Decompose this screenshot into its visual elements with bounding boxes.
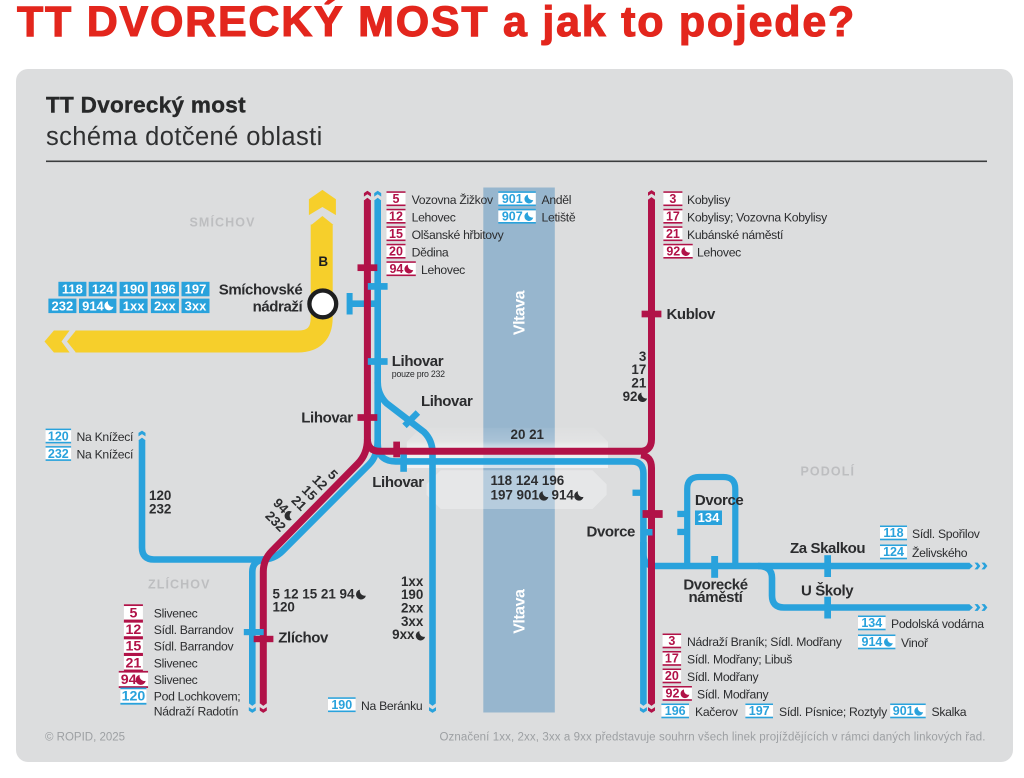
svg-text:190: 190 xyxy=(123,282,145,297)
svg-text:pouze pro 232: pouze pro 232 xyxy=(392,369,445,379)
svg-text:Sídl. Modřany: Sídl. Modřany xyxy=(687,670,759,684)
svg-text:Slivenec: Slivenec xyxy=(154,673,198,687)
svg-text:ZLÍCHOV: ZLÍCHOV xyxy=(148,577,211,592)
svg-text:Dědina: Dědina xyxy=(412,245,449,259)
svg-text:© ROPID, 2025: © ROPID, 2025 xyxy=(45,732,125,744)
svg-text:Dvorce: Dvorce xyxy=(587,524,636,541)
svg-text:914: 914 xyxy=(862,635,883,649)
svg-text:20: 20 xyxy=(389,245,403,259)
svg-text:Sídl. Barrandov: Sídl. Barrandov xyxy=(154,640,235,654)
svg-text:PODOLÍ: PODOLÍ xyxy=(801,464,856,479)
svg-text:Na Beránku: Na Beránku xyxy=(361,699,422,713)
svg-text:124: 124 xyxy=(883,545,904,559)
svg-text:Podolská vodárna: Podolská vodárna xyxy=(891,617,984,631)
svg-text:U Školy: U Školy xyxy=(801,582,854,600)
svg-text:1xx: 1xx xyxy=(123,298,145,313)
svg-text:Kubánské náměstí: Kubánské náměstí xyxy=(687,228,784,242)
svg-text:TT DVORECKÝ MOST a jak to poje: TT DVORECKÝ MOST a jak to pojede? xyxy=(17,0,856,46)
svg-text:134: 134 xyxy=(698,510,720,525)
svg-text:134: 134 xyxy=(861,616,882,630)
svg-text:118: 118 xyxy=(883,526,903,540)
svg-text:Anděl: Anděl xyxy=(542,193,572,207)
svg-text:Na Knížecí: Na Knížecí xyxy=(77,448,135,462)
svg-text:Pod Lochkovem;: Pod Lochkovem; xyxy=(154,690,241,704)
svg-text:21: 21 xyxy=(666,227,680,241)
svg-text:20: 20 xyxy=(665,669,679,683)
svg-text:Nádraží Braník; Sídl. Modřany: Nádraží Braník; Sídl. Modřany xyxy=(687,635,843,649)
svg-text:124: 124 xyxy=(92,282,114,297)
svg-text:120: 120 xyxy=(273,600,295,615)
svg-text:15: 15 xyxy=(389,227,403,241)
svg-text:120: 120 xyxy=(122,689,146,705)
svg-text:Kačerov: Kačerov xyxy=(695,705,739,719)
svg-text:232: 232 xyxy=(48,447,69,461)
svg-text:92: 92 xyxy=(666,245,680,259)
svg-text:Lehovec: Lehovec xyxy=(421,263,465,277)
svg-text:Želivského: Želivského xyxy=(912,545,968,560)
svg-text:92: 92 xyxy=(666,687,680,701)
svg-text:Olšanské hřbitovy: Olšanské hřbitovy xyxy=(412,228,505,242)
svg-text:94: 94 xyxy=(121,672,137,688)
svg-text:901: 901 xyxy=(893,704,914,718)
svg-text:3: 3 xyxy=(669,192,676,206)
svg-text:Smíchovské: Smíchovské xyxy=(219,281,303,298)
svg-text:Nádraží Radotín: Nádraží Radotín xyxy=(154,705,238,719)
svg-text:Slivenec: Slivenec xyxy=(154,656,198,670)
svg-text:Vltava: Vltava xyxy=(512,589,529,634)
svg-text:232: 232 xyxy=(52,298,74,313)
svg-text:21: 21 xyxy=(126,655,142,671)
svg-text:Kobylisy; Vozovna Kobylisy: Kobylisy; Vozovna Kobylisy xyxy=(687,210,828,224)
svg-text:2xx: 2xx xyxy=(154,298,176,313)
svg-text:197: 197 xyxy=(749,704,770,718)
svg-text:Sídl. Modřany; Libuš: Sídl. Modřany; Libuš xyxy=(687,653,792,667)
svg-text:914: 914 xyxy=(82,298,104,313)
svg-text:Dvorce: Dvorce xyxy=(695,492,744,509)
svg-text:TT Dvorecký most: TT Dvorecký most xyxy=(46,93,246,118)
svg-text:Lehovec: Lehovec xyxy=(412,210,456,224)
svg-text:náměstí: náměstí xyxy=(689,589,744,606)
svg-text:Sídl. Písnice; Roztyly: Sídl. Písnice; Roztyly xyxy=(779,705,888,719)
svg-text:Na Knížecí: Na Knížecí xyxy=(77,430,135,444)
svg-text:12: 12 xyxy=(389,210,403,224)
svg-text:Lihovar: Lihovar xyxy=(392,353,444,370)
svg-text:Vltava: Vltava xyxy=(512,290,529,335)
svg-text:Skalka: Skalka xyxy=(932,705,967,719)
svg-text:17: 17 xyxy=(665,652,679,666)
svg-text:196: 196 xyxy=(154,282,176,297)
svg-text:Slivenec: Slivenec xyxy=(154,606,198,620)
svg-text:SMÍCHOV: SMÍCHOV xyxy=(190,215,256,230)
svg-text:197 901: 197 901 xyxy=(491,488,540,503)
svg-text:15: 15 xyxy=(126,639,142,655)
svg-text:Sídl. Barrandov: Sídl. Barrandov xyxy=(154,623,235,637)
svg-text:Sídl. Spořilov: Sídl. Spořilov xyxy=(912,527,981,541)
svg-text:120: 120 xyxy=(48,429,69,443)
svg-text:17: 17 xyxy=(666,210,680,224)
svg-text:Zlíchov: Zlíchov xyxy=(278,630,329,647)
svg-text:Lihovar: Lihovar xyxy=(372,474,424,491)
svg-text:190: 190 xyxy=(331,698,352,712)
svg-text:94: 94 xyxy=(389,262,403,276)
svg-text:Kobylisy: Kobylisy xyxy=(687,193,731,207)
svg-text:9xx: 9xx xyxy=(392,627,415,642)
svg-text:12: 12 xyxy=(126,622,142,638)
svg-text:118 124 196: 118 124 196 xyxy=(491,473,565,488)
svg-text:Označení 1xx, 2xx, 3xx a 9xx p: Označení 1xx, 2xx, 3xx a 9xx představuje… xyxy=(439,732,985,744)
svg-text:Lehovec: Lehovec xyxy=(697,245,741,259)
svg-text:232: 232 xyxy=(149,501,171,516)
svg-text:118: 118 xyxy=(62,282,83,297)
svg-text:3xx: 3xx xyxy=(185,298,207,313)
svg-text:901: 901 xyxy=(502,192,523,206)
svg-text:Vinoř: Vinoř xyxy=(901,636,929,650)
svg-text:5: 5 xyxy=(393,192,400,206)
svg-text:5: 5 xyxy=(129,605,137,621)
svg-text:Za Skalkou: Za Skalkou xyxy=(790,540,865,557)
svg-text:20 21: 20 21 xyxy=(511,427,545,442)
svg-text:nádraží: nádraží xyxy=(253,298,304,315)
svg-text:Kublov: Kublov xyxy=(667,306,716,323)
svg-text:Vozovna Žižkov: Vozovna Žižkov xyxy=(412,192,494,207)
svg-text:3: 3 xyxy=(668,634,675,648)
svg-text:Lihovar: Lihovar xyxy=(421,393,473,410)
svg-text:Letiště: Letiště xyxy=(542,210,576,224)
svg-text:197: 197 xyxy=(185,282,207,297)
svg-text:907: 907 xyxy=(502,210,523,224)
svg-text:schéma dotčené oblasti: schéma dotčené oblasti xyxy=(46,123,323,151)
svg-text:196: 196 xyxy=(665,704,686,718)
svg-text:Lihovar: Lihovar xyxy=(301,410,353,427)
svg-text:B: B xyxy=(318,254,328,269)
svg-text:Sídl. Modřany: Sídl. Modřany xyxy=(697,688,769,702)
svg-text:92: 92 xyxy=(623,389,638,404)
svg-text:914: 914 xyxy=(552,488,575,503)
